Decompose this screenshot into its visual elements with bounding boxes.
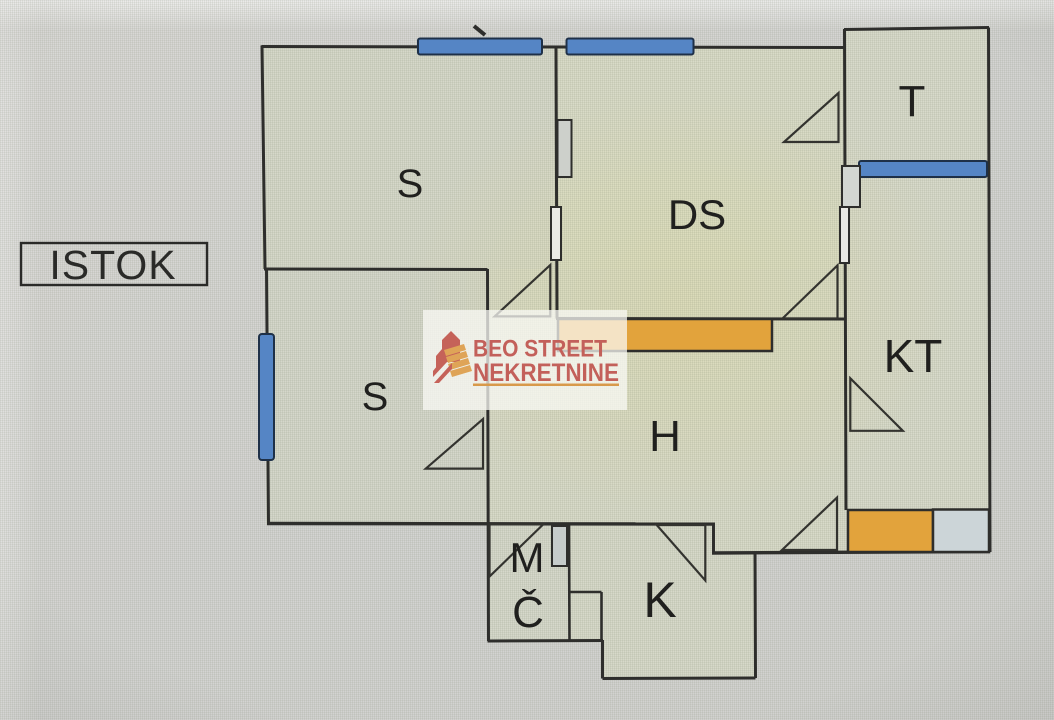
svg-text:ISTOK: ISTOK (49, 242, 176, 288)
svg-text:H: H (649, 412, 681, 461)
svg-text:T: T (899, 77, 926, 126)
svg-text:S: S (397, 162, 424, 206)
svg-text:NEKRETNINE: NEKRETNINE (473, 359, 619, 387)
svg-text:K: K (643, 572, 676, 628)
svg-text:M: M (510, 534, 545, 581)
svg-text:S: S (362, 375, 389, 419)
svg-text:KT: KT (884, 330, 943, 382)
svg-text:Č: Č (512, 587, 544, 637)
svg-text:DS: DS (668, 191, 726, 238)
